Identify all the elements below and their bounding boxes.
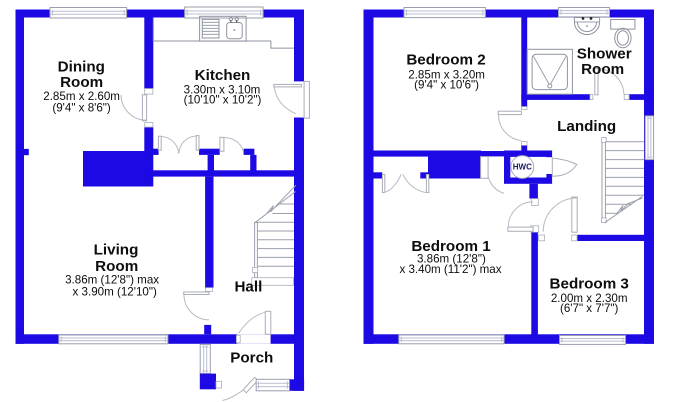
svg-text:HWC: HWC (513, 163, 532, 172)
svg-text:Room: Room (60, 74, 103, 91)
svg-text:x 3.40m (11'2") max: x 3.40m (11'2") max (399, 263, 501, 276)
svg-text:Living: Living (94, 242, 139, 259)
svg-text:x 3.90m (12'10"): x 3.90m (12'10") (73, 285, 157, 298)
svg-text:Porch: Porch (230, 350, 273, 367)
svg-text:Hall: Hall (234, 278, 262, 295)
svg-text:Room: Room (581, 61, 624, 78)
svg-text:Dining: Dining (58, 59, 105, 76)
svg-text:Bedroom 2: Bedroom 2 (406, 52, 485, 69)
svg-text:Kitchen: Kitchen (195, 67, 251, 84)
svg-text:(6'7" x 7'7"): (6'7" x 7'7") (560, 302, 619, 315)
svg-text:(9'4" x 10'6"): (9'4" x 10'6") (414, 79, 479, 92)
svg-text:(10'10" x 10'2"): (10'10" x 10'2") (184, 94, 262, 107)
svg-text:Landing: Landing (557, 118, 616, 135)
svg-text:(9'4" x 8'6"): (9'4" x 8'6") (52, 102, 111, 115)
svg-text:Bedroom 3: Bedroom 3 (550, 276, 629, 293)
